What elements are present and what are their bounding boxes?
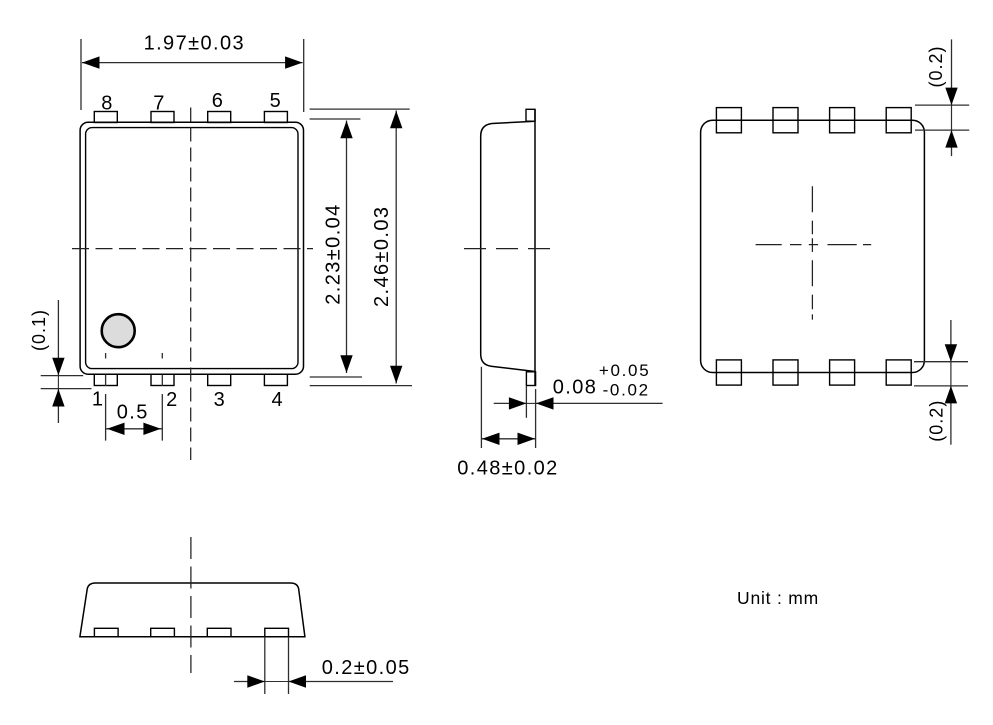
svg-text:1: 1 (92, 389, 103, 411)
svg-text:2.46±0.03: 2.46±0.03 (371, 206, 393, 307)
svg-text:+0.05: +0.05 (599, 361, 651, 380)
svg-text:5: 5 (270, 90, 281, 112)
svg-text:2.23±0.04: 2.23±0.04 (323, 203, 345, 304)
svg-text:0.48±0.02: 0.48±0.02 (457, 458, 558, 480)
svg-text:0.5: 0.5 (117, 402, 149, 424)
svg-text:Unit : mm: Unit : mm (737, 588, 819, 608)
svg-text:7: 7 (153, 92, 164, 114)
svg-text:(0.2): (0.2) (926, 45, 946, 87)
svg-text:-0.02: -0.02 (603, 381, 650, 400)
svg-text:0.2±0.05: 0.2±0.05 (322, 657, 411, 679)
svg-text:(0.2): (0.2) (927, 400, 947, 442)
svg-text:6: 6 (212, 90, 223, 112)
svg-text:2: 2 (166, 389, 177, 411)
svg-text:3: 3 (214, 389, 225, 411)
svg-text:(0.1): (0.1) (29, 309, 49, 351)
svg-text:1.97±0.03: 1.97±0.03 (144, 33, 245, 55)
svg-text:8: 8 (101, 92, 112, 114)
svg-text:0.08: 0.08 (553, 376, 598, 398)
svg-text:4: 4 (271, 389, 282, 411)
